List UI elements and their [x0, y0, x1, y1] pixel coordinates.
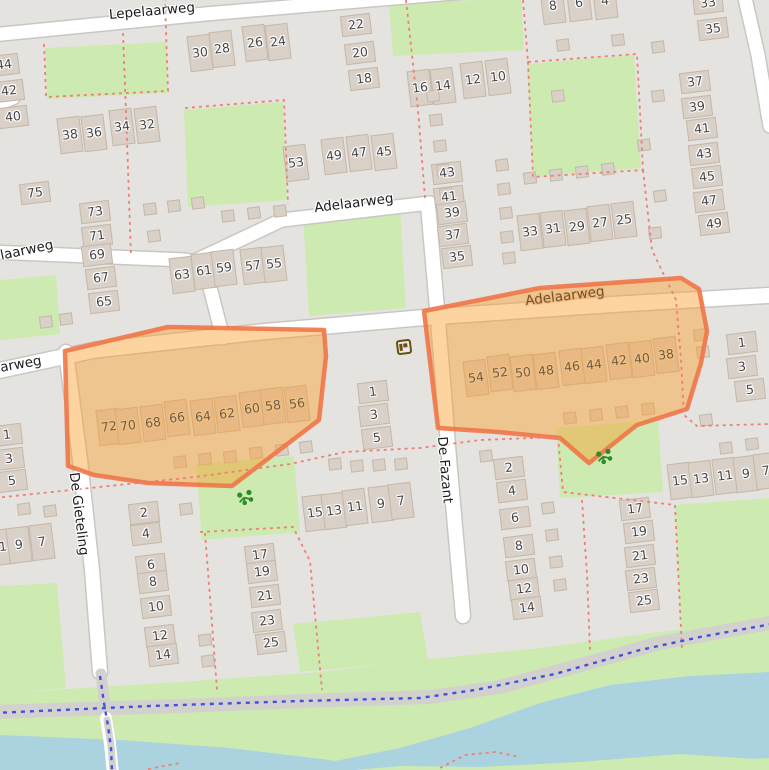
house-number-label: 32	[138, 118, 155, 132]
house-number-label: 69	[88, 248, 105, 262]
house-number-label: 25	[635, 594, 652, 608]
house-number-label: 14	[518, 601, 535, 615]
house-number-label: 17	[626, 502, 643, 516]
street-name-label: Lepelaarweg	[108, 2, 195, 23]
house-number-label: 31	[544, 222, 561, 236]
house-number-label: 44	[0, 58, 13, 72]
house-number-label: 4	[507, 484, 516, 497]
house-number-label: 36	[85, 126, 102, 140]
house-number-label: 9	[14, 538, 23, 551]
house-number-label: 73	[86, 205, 103, 219]
house-number-label: 66	[168, 411, 185, 425]
house-number-label: 25	[615, 213, 632, 227]
house-number-label: 11	[346, 500, 363, 514]
house-number-label: 44	[585, 358, 602, 372]
house-number-label: 3	[737, 360, 746, 373]
house-number-label: 33	[521, 225, 538, 239]
house-number-label: 1	[2, 428, 11, 441]
house-number-label: 3	[4, 452, 13, 465]
house-number-label: 7	[37, 535, 46, 548]
house-number-label: 49	[705, 217, 722, 231]
house-number-label: 5	[372, 431, 381, 444]
house-number-label: 50	[514, 366, 531, 380]
house-number-label: 46	[563, 360, 580, 374]
house-number-label: 12	[515, 582, 532, 596]
house-number-label: 49	[325, 149, 342, 163]
house-number-label: 38	[657, 348, 674, 362]
house-number-label: 1	[737, 336, 746, 349]
house-number-label: 47	[350, 146, 367, 160]
house-number-label: 1	[0, 540, 8, 553]
house-number-label: 30	[191, 46, 208, 60]
house-number-label: 52	[491, 366, 508, 380]
house-number-label: 23	[258, 614, 275, 628]
house-number-label: 15	[671, 474, 688, 488]
house-number-label: 35	[704, 22, 721, 36]
house-number-label: 17	[251, 548, 268, 562]
house-number-label: 16	[411, 81, 428, 95]
house-number-label: 8	[148, 575, 157, 588]
house-number-label: 37	[686, 75, 703, 89]
house-number-label: 61	[195, 264, 212, 278]
house-number-label: 54	[467, 371, 484, 385]
map-canvas[interactable]: 4442403836343230282624222018757371696765…	[0, 0, 769, 770]
house-number-label: 9	[741, 467, 750, 480]
street-name-label: laarweg	[0, 239, 55, 263]
house-number-label: 19	[630, 525, 647, 539]
house-number-label: 2	[504, 461, 513, 474]
house-number-label: 43	[438, 166, 455, 180]
house-number-label: 47	[700, 194, 717, 208]
house-number-label: 67	[92, 271, 109, 285]
house-number-label: 28	[213, 42, 230, 56]
house-number-label: 12	[151, 629, 168, 643]
house-number-label: 9	[376, 497, 385, 510]
house-number-label: 10	[147, 600, 164, 614]
house-number-label: 29	[568, 220, 585, 234]
playground-icon	[595, 447, 613, 465]
house-number-label: 13	[325, 504, 342, 518]
house-number-label: 58	[264, 399, 281, 413]
house-number-label: 10	[512, 563, 529, 577]
house-number-label: 3	[369, 408, 378, 421]
house-number-label: 25	[262, 636, 279, 650]
house-number-label: 1	[368, 385, 377, 398]
house-number-label: 53	[287, 156, 304, 170]
house-number-label: 35	[448, 250, 465, 264]
playground-icon	[236, 488, 254, 506]
street-name-label: De Gieteling	[66, 472, 90, 557]
house-number-label: 19	[253, 565, 270, 579]
house-number-label: 37	[444, 228, 461, 242]
house-number-label: 4	[141, 527, 150, 540]
street-name-label: Adelaarweg	[314, 192, 395, 215]
house-number-label: 22	[347, 18, 364, 32]
street-name-label: arweg	[0, 355, 43, 376]
house-number-label: 70	[119, 419, 136, 433]
house-number-label: 45	[375, 145, 392, 159]
house-number-label: 21	[256, 589, 273, 603]
house-number-label: 65	[95, 295, 112, 309]
house-number-label: 75	[26, 186, 43, 200]
house-number-label: 6	[510, 511, 519, 524]
house-number-label: 63	[173, 268, 190, 282]
house-number-label: 40	[633, 352, 650, 366]
house-number-label: 33	[699, 0, 716, 10]
house-number-label: 8	[548, 0, 557, 13]
house-number-label: 42	[610, 354, 627, 368]
house-number-label: 43	[695, 147, 712, 161]
street-name-label: De Fazant	[434, 436, 453, 504]
house-number-label: 20	[351, 46, 368, 60]
house-number-label: 6	[574, 0, 583, 10]
labels-layer: 4442403836343230282624222018757371696765…	[0, 0, 769, 770]
house-number-label: 27	[591, 216, 608, 230]
house-number-label: 11	[716, 469, 733, 483]
street-name-label: Adelaarweg	[525, 285, 606, 308]
house-number-label: 48	[537, 364, 554, 378]
house-number-label: 12	[464, 73, 481, 87]
house-number-label: 71	[88, 229, 105, 243]
house-number-label: 34	[113, 120, 130, 134]
house-number-label: 68	[144, 416, 161, 430]
house-number-label: 14	[434, 79, 451, 93]
house-number-label: 5	[745, 383, 754, 396]
house-number-label: 56	[288, 397, 305, 411]
house-number-label: 21	[631, 549, 648, 563]
house-number-label: 13	[692, 472, 709, 486]
house-number-label: 60	[243, 402, 260, 416]
house-number-label: 10	[489, 70, 506, 84]
house-number-label: 6	[146, 558, 155, 571]
house-number-label: 23	[632, 572, 649, 586]
house-number-label: 41	[693, 122, 710, 136]
house-number-label: 72	[100, 420, 117, 434]
house-number-label: 39	[443, 206, 460, 220]
postbox-icon	[396, 339, 413, 356]
house-number-label: 40	[4, 110, 21, 124]
house-number-label: 62	[218, 407, 235, 421]
house-number-label: 2	[139, 506, 148, 519]
house-number-label: 15	[306, 506, 323, 520]
house-number-label: 8	[514, 539, 523, 552]
house-number-label: 41	[440, 190, 457, 204]
house-number-label: 4	[600, 0, 609, 8]
house-number-label: 45	[698, 170, 715, 184]
house-number-label: 26	[246, 36, 263, 50]
house-number-label: 24	[269, 35, 286, 49]
house-number-label: 38	[61, 128, 78, 142]
house-number-label: 7	[761, 464, 769, 477]
house-number-label: 5	[7, 474, 16, 487]
house-number-label: 59	[215, 261, 232, 275]
house-number-label: 18	[355, 72, 372, 86]
house-number-label: 14	[154, 648, 171, 662]
house-number-label: 7	[396, 494, 405, 507]
house-number-label: 39	[688, 100, 705, 114]
house-number-label: 55	[265, 257, 282, 271]
house-number-label: 64	[194, 410, 211, 424]
house-number-label: 57	[244, 259, 261, 273]
house-number-label: 42	[0, 84, 17, 98]
